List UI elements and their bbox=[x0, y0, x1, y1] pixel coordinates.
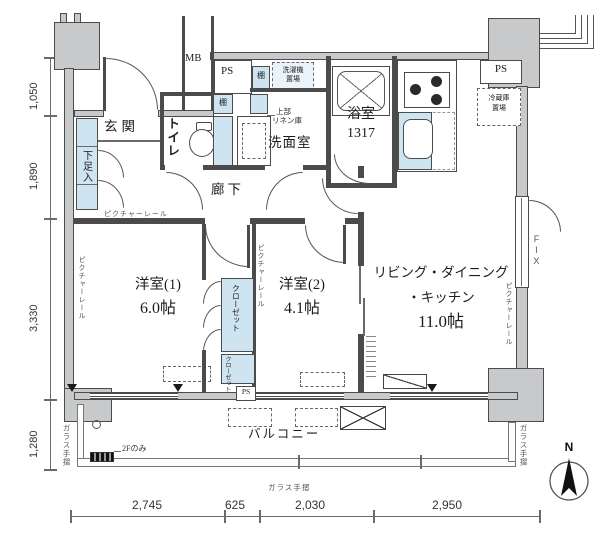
picture-rail-label: ピクチャーレール bbox=[77, 256, 87, 336]
balcony-railing bbox=[77, 404, 84, 464]
toilet-door-arc bbox=[166, 172, 203, 210]
glass-railing-label: ガラス手摺 bbox=[61, 424, 72, 468]
2f-only-label: 2Fのみ bbox=[122, 445, 146, 453]
column bbox=[60, 13, 67, 23]
cabinet-divider bbox=[77, 184, 97, 185]
washing-machine-label: 置場 bbox=[272, 76, 314, 83]
fridge-label: 置場 bbox=[477, 105, 521, 112]
burner-icon bbox=[431, 94, 442, 105]
shelf-label: 棚 bbox=[219, 99, 227, 107]
linen-label: 上部 bbox=[276, 108, 291, 116]
closet-label: クローゼット bbox=[231, 284, 239, 332]
wall bbox=[160, 92, 164, 170]
washroom-door-arc bbox=[266, 172, 303, 210]
fix-window-line bbox=[521, 198, 522, 286]
shelf-label: 棚 bbox=[257, 72, 265, 80]
room-label-ldk1: リビング・ダイニング bbox=[361, 266, 521, 280]
wall bbox=[358, 334, 364, 392]
burner-icon bbox=[431, 76, 442, 87]
wall bbox=[358, 166, 364, 178]
glass-railing-label: ガラス手摺 bbox=[268, 482, 310, 493]
picture-rail-label: ピクチャーレール bbox=[104, 209, 168, 219]
dim-label-left-2: 1,890 bbox=[28, 144, 40, 190]
sink bbox=[403, 119, 433, 159]
marker-triangle bbox=[67, 384, 77, 392]
dim-label-bottom-2: 625 bbox=[215, 499, 255, 512]
dim-tick bbox=[44, 115, 57, 117]
toilet-cabinet bbox=[213, 116, 233, 166]
room-label-r2-size: 4.1帖 bbox=[252, 301, 352, 318]
dim-label-bottom-4: 2,950 bbox=[417, 499, 477, 512]
door-arc bbox=[98, 150, 124, 178]
wall bbox=[202, 350, 206, 392]
toilet-bowl bbox=[189, 129, 215, 157]
bathtub-inner bbox=[337, 71, 385, 111]
balcony-railing bbox=[77, 458, 516, 467]
wall bbox=[202, 224, 206, 280]
window bbox=[90, 393, 178, 399]
mb-label: MB bbox=[185, 53, 201, 64]
fridge-label: 冷蔵庫 bbox=[477, 95, 521, 102]
wall bbox=[203, 165, 265, 170]
wall bbox=[64, 68, 74, 392]
wall bbox=[358, 222, 364, 266]
room1-door-arc bbox=[205, 225, 249, 267]
dim-label-left-3: 3,330 bbox=[28, 286, 40, 332]
glass-railing-label: ガラス手摺 bbox=[518, 424, 529, 468]
room-label-r1-size: 6.0帖 bbox=[108, 301, 208, 318]
ps-label: PS bbox=[480, 64, 522, 76]
dim-label-bottom-1: 2,745 bbox=[117, 499, 177, 512]
dim-tick bbox=[373, 510, 375, 523]
drain-circle bbox=[92, 420, 101, 429]
left-dim-line bbox=[50, 57, 51, 469]
equipment-dashed-box bbox=[300, 372, 345, 387]
room-label-r1: 洋室(1) bbox=[108, 278, 208, 293]
wall bbox=[160, 165, 165, 170]
dim-label-left-1: 1,050 bbox=[28, 64, 40, 110]
room-label-balcony: バルコニー bbox=[248, 428, 318, 441]
closet-small-label: クローゼット bbox=[224, 356, 230, 383]
wall bbox=[250, 218, 305, 224]
room-label-washroom: 洗面室 bbox=[268, 136, 312, 150]
bottom-dim-line bbox=[70, 516, 540, 517]
wall bbox=[74, 110, 104, 117]
column bbox=[74, 13, 81, 23]
washing-machine-label: 洗濯機 bbox=[272, 67, 314, 74]
marker-triangle bbox=[173, 384, 183, 392]
dim-tick bbox=[539, 510, 541, 523]
room-label-bath: 浴室 bbox=[332, 108, 390, 123]
room-label-r2: 洋室(2) bbox=[252, 278, 352, 293]
window bbox=[390, 393, 488, 399]
burner-icon bbox=[410, 84, 421, 95]
door-arc bbox=[529, 200, 561, 232]
wall bbox=[326, 56, 331, 188]
ps-label: PS bbox=[221, 66, 233, 78]
pipe-line bbox=[540, 15, 594, 49]
outdoor-unit-dashed bbox=[228, 408, 272, 427]
dim-label-bottom-3: 2,030 bbox=[280, 499, 340, 512]
compass-north-label: N bbox=[565, 440, 574, 454]
vanity-basin bbox=[242, 123, 266, 159]
dim-tick bbox=[44, 399, 57, 401]
railing-divider bbox=[420, 455, 422, 469]
room-label-ldk2: ・キッチン bbox=[361, 291, 521, 305]
outdoor-unit-dashed bbox=[295, 408, 338, 427]
room-label-genkan: 玄関 bbox=[104, 120, 139, 134]
door-leaf bbox=[247, 225, 250, 268]
folding-door-arc bbox=[203, 329, 221, 352]
dim-tick bbox=[44, 218, 57, 220]
dim-tick bbox=[70, 510, 72, 523]
room2-door-arc bbox=[305, 225, 345, 263]
wall bbox=[250, 88, 330, 92]
wall bbox=[158, 110, 214, 117]
entrance-door-arc bbox=[106, 58, 158, 110]
sliding-door-pocket bbox=[366, 336, 376, 380]
room-label-ldk-size: 11.0帖 bbox=[361, 313, 521, 331]
shoe-cabinet-label: 下足入 bbox=[80, 150, 91, 183]
dim-tick bbox=[44, 469, 57, 471]
room-label-hall: 廊下 bbox=[211, 183, 244, 197]
leader-line bbox=[114, 451, 121, 452]
shelf-box bbox=[250, 94, 268, 114]
door-arc bbox=[98, 180, 124, 208]
ac-unit bbox=[383, 374, 427, 389]
wall bbox=[210, 52, 490, 60]
2f-only-element bbox=[90, 452, 114, 462]
outdoor-unit-x bbox=[340, 406, 386, 430]
column bbox=[54, 22, 100, 70]
cabinet-divider bbox=[77, 146, 97, 147]
linen-label: リネン庫 bbox=[272, 117, 302, 125]
compass: N bbox=[540, 436, 598, 506]
fix-window-label: FIX bbox=[531, 234, 540, 267]
room-label-bath-size: 1317 bbox=[332, 127, 390, 142]
balcony-railing bbox=[508, 422, 516, 462]
dim-tick bbox=[259, 510, 261, 523]
ps-label: PS bbox=[236, 388, 256, 396]
door-leaf bbox=[343, 225, 346, 264]
window bbox=[256, 393, 344, 399]
entry-step-line bbox=[98, 140, 160, 142]
room-label-toilet: トイレ bbox=[165, 117, 178, 158]
leader-line bbox=[267, 115, 275, 116]
railing-divider bbox=[298, 455, 300, 469]
wall bbox=[160, 92, 213, 96]
floorplan: 1,050 1,890 3,330 1,280 2,745 625 2,030 … bbox=[0, 0, 600, 533]
ldk-door-arc bbox=[322, 178, 358, 214]
marker-triangle bbox=[427, 384, 437, 392]
dim-label-left-4: 1,280 bbox=[28, 412, 40, 458]
